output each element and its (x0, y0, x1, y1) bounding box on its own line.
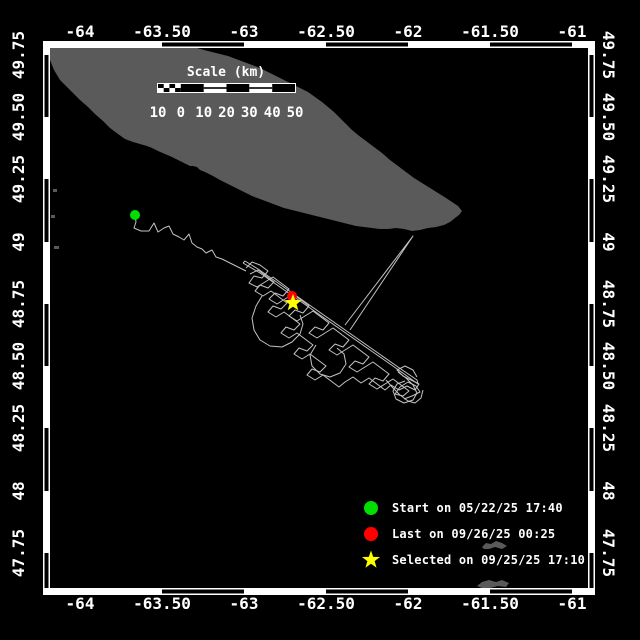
x-axis-label-top: -63 (230, 22, 259, 41)
legend-item-last: Last on 09/26/25 00:25 (360, 525, 555, 543)
selected-star-icon (360, 550, 382, 570)
track-segment[interactable] (310, 345, 346, 377)
y-axis-label-left: 49 (9, 232, 28, 251)
y-axis-label-right: 49 (599, 232, 618, 251)
scale-bar-tick-label: 10 (150, 105, 167, 121)
y-axis-label-right: 49.50 (599, 93, 618, 141)
small-island (477, 580, 509, 588)
map-plot: -64-64-63.50-63.50-63-63-62.50-62.50-62-… (0, 0, 640, 640)
scale-bar-tick-label: 40 (264, 105, 281, 121)
y-axis-label-left: 47.75 (9, 529, 28, 577)
small-island (54, 246, 59, 249)
x-axis-label-bottom: -63 (230, 594, 259, 613)
selected-point-marker[interactable] (284, 294, 301, 310)
y-axis-label-right: 48.25 (599, 404, 618, 452)
scale-bar-tick-label: 50 (287, 105, 304, 121)
track-segment[interactable] (345, 236, 413, 330)
y-axis-label-left: 48.75 (9, 280, 28, 328)
scale-bar-tick-label: 20 (218, 105, 235, 121)
legend-item-start: Start on 05/22/25 17:40 (360, 499, 563, 517)
y-axis-label-right: 49.75 (599, 31, 618, 79)
y-axis-label-left: 48 (9, 481, 28, 500)
legend-item-selected: Selected on 09/25/25 17:10 (360, 551, 585, 569)
legend-last-label: Last on 09/26/25 00:25 (392, 527, 555, 541)
x-axis-label-top: -63.50 (133, 22, 191, 41)
track-segment[interactable] (134, 215, 246, 271)
x-axis-label-top: -62.50 (297, 22, 355, 41)
x-axis-label-bottom: -61.50 (461, 594, 519, 613)
legend-start-label: Start on 05/22/25 17:40 (392, 501, 563, 515)
track-path[interactable] (134, 215, 423, 403)
y-axis-label-right: 47.75 (599, 529, 618, 577)
track-segment[interactable] (243, 261, 418, 384)
last-marker-icon (360, 524, 382, 544)
y-axis-label-left: 48.25 (9, 404, 28, 452)
scale-bar-title: Scale (km) (187, 65, 265, 80)
x-axis-label-top: -61 (558, 22, 587, 41)
y-axis-label-left: 49.75 (9, 31, 28, 79)
x-axis-label-bottom: -62.50 (297, 594, 355, 613)
y-axis-label-right: 48.75 (599, 280, 618, 328)
y-axis-label-left: 48.50 (9, 342, 28, 390)
y-axis-label-right: 49.25 (599, 155, 618, 203)
small-island (51, 215, 55, 218)
track-segment[interactable] (246, 262, 420, 399)
scale-bar-tick-label: 10 (195, 105, 212, 121)
y-axis-label-left: 49.50 (9, 93, 28, 141)
start-marker-icon (360, 498, 382, 518)
y-axis-label-left: 49.25 (9, 155, 28, 203)
x-axis-label-bottom: -64 (66, 594, 95, 613)
x-axis-label-top: -62 (394, 22, 423, 41)
scale-bar-tick-label: 30 (241, 105, 258, 121)
map-screen: -64-64-63.50-63.50-63-63-62.50-62.50-62-… (0, 0, 640, 640)
track-segment[interactable] (250, 270, 419, 390)
x-axis-label-top: -61.50 (461, 22, 519, 41)
x-axis-label-bottom: -61 (558, 594, 587, 613)
y-axis-label-right: 48.50 (599, 342, 618, 390)
scale-bar-tick-label: 0 (177, 105, 185, 121)
small-island (53, 189, 57, 192)
x-axis-label-bottom: -63.50 (133, 594, 191, 613)
y-axis-label-right: 48 (599, 481, 618, 500)
x-axis-label-bottom: -62 (394, 594, 423, 613)
x-axis-label-top: -64 (66, 22, 95, 41)
start-point-marker[interactable] (130, 210, 140, 220)
legend-selected-label: Selected on 09/25/25 17:10 (392, 553, 585, 567)
